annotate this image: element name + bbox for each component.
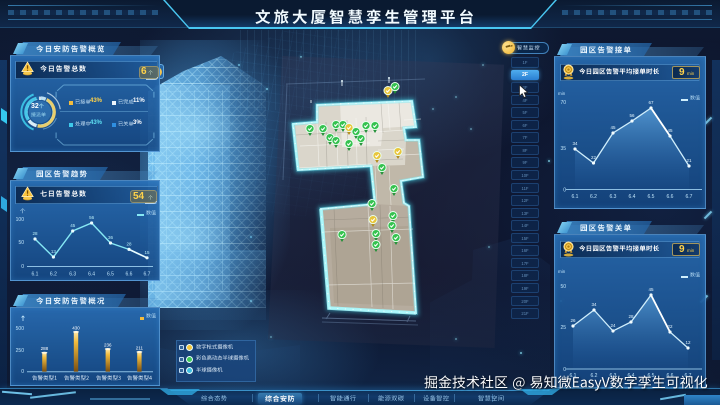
svg-text:22: 22 bbox=[667, 324, 673, 329]
svg-text:25: 25 bbox=[560, 325, 566, 331]
svg-text:34: 34 bbox=[591, 302, 597, 307]
svg-text:26: 26 bbox=[570, 318, 576, 323]
svg-text:min: min bbox=[558, 269, 566, 274]
svg-text:45: 45 bbox=[648, 287, 654, 292]
svg-text:12: 12 bbox=[685, 340, 691, 345]
svg-text:24: 24 bbox=[610, 323, 616, 328]
svg-text:28: 28 bbox=[628, 314, 634, 319]
svg-text:50: 50 bbox=[560, 284, 566, 290]
svg-text:0: 0 bbox=[563, 367, 566, 373]
